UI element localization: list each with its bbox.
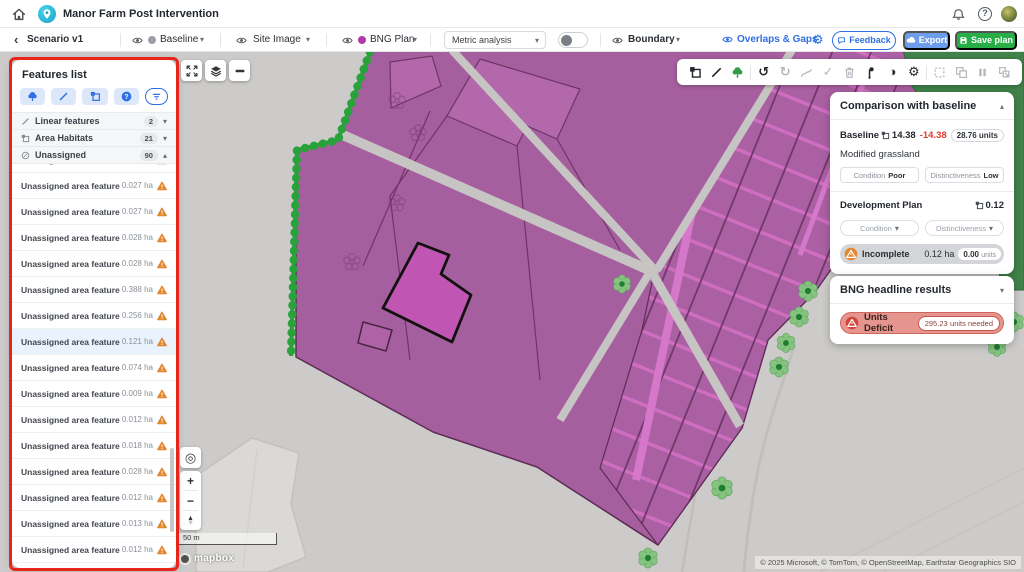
home-icon[interactable] (12, 7, 26, 21)
development-plan-label: Development Plan (840, 200, 922, 211)
section-unassigned[interactable]: Unassigned 90 (12, 146, 176, 163)
divider (926, 65, 927, 80)
back-chevron-icon[interactable] (14, 28, 18, 52)
scenario-label[interactable]: Scenario v1 (27, 28, 83, 52)
divider (220, 33, 221, 47)
baseline-layer-label[interactable]: Baseline (160, 28, 198, 52)
site-image-layer-label[interactable]: Site Image (253, 28, 301, 52)
chevron-up-icon[interactable] (163, 150, 167, 161)
feature-list-item[interactable]: Unassigned area feature0.018 ha (12, 433, 176, 459)
chevron-down-icon (895, 224, 899, 233)
bng-plan-layer-label[interactable]: BNG Plan (370, 28, 414, 52)
feature-list-item[interactable]: Unassigned area feature0.121 ha (12, 329, 176, 355)
feature-item-area: 0.009 ha (122, 389, 153, 398)
feature-item-label: Unassigned area feature (21, 441, 122, 451)
feature-item-area: 0.012 ha (122, 493, 153, 502)
condition-dropdown-label: Condition (860, 224, 892, 233)
toggle-knob (561, 35, 572, 46)
fullscreen-button[interactable] (181, 60, 202, 81)
feature-list-item[interactable]: Unassigned area feature0.028 ha (12, 225, 176, 251)
warning-triangle-icon (157, 207, 167, 217)
feature-item-area: 0.018 ha (122, 441, 153, 450)
overlaps-gaps-label: Overlaps & Gaps (737, 34, 818, 45)
page-title: Manor Farm Post Intervention (63, 0, 219, 28)
warning-triangle-icon (157, 311, 167, 321)
bng-headline-panel: BNG headline results Units Deficit 295.2… (830, 276, 1014, 344)
chevron-down-icon[interactable] (413, 28, 417, 52)
bng-plan-visibility-eye-icon[interactable] (342, 35, 353, 46)
filter-button[interactable] (145, 88, 168, 105)
select-box-icon (933, 66, 946, 79)
feature-item-area: 0.027 ha (122, 207, 153, 216)
chevron-down-icon (535, 32, 539, 49)
freehand-tool[interactable] (798, 63, 816, 81)
warning-triangle-icon (157, 259, 167, 269)
warning-triangle-icon (157, 337, 167, 347)
metric-analysis-dropdown[interactable]: Metric analysis (444, 31, 546, 49)
section-linear-features[interactable]: Linear features 2 (12, 112, 176, 129)
divider (120, 33, 121, 47)
save-icon (959, 36, 968, 45)
compass-button[interactable] (180, 511, 201, 530)
scenario-toolbar: Scenario v1 Baseline Site Image BNG Plan… (0, 28, 1024, 52)
distinctiveness-value: Low (984, 171, 999, 180)
tab-area-features[interactable] (82, 88, 107, 105)
metric-analysis-label: Metric analysis (452, 35, 512, 45)
feature-item-label: Unassigned area feature (21, 181, 122, 191)
feature-list-item[interactable]: Unassigned area feature0.012 ha (12, 537, 176, 563)
feature-filter-tabs (12, 88, 176, 112)
warning-triangle-icon (157, 467, 167, 477)
delete-button[interactable] (841, 63, 859, 81)
feedback-button[interactable]: Feedback (832, 31, 896, 50)
chevron-down-icon[interactable] (306, 28, 310, 52)
split-tool[interactable] (974, 63, 992, 81)
tree-tool[interactable] (729, 63, 747, 81)
units-deficit-value: 295.23 (925, 319, 948, 328)
feature-item-area: 0.028 ha (122, 259, 153, 268)
chevron-down-icon[interactable] (163, 116, 167, 127)
polygon-icon (90, 91, 101, 102)
section-label: Linear features (35, 116, 144, 126)
feature-item-label: Unassigned area feature (21, 545, 122, 555)
user-avatar[interactable] (1001, 6, 1017, 22)
mapbox-wordmark: mapbox (194, 553, 234, 564)
bng-plan-layer-dot (358, 36, 366, 44)
redo-button[interactable]: ↻ (776, 63, 794, 81)
feature-item-label: Unassigned area feature (21, 389, 122, 399)
feature-item-label: Unassigned area feature (21, 207, 122, 217)
mask-tool[interactable]: ◑ (883, 63, 901, 81)
divider (750, 65, 751, 80)
comparison-panel-title: Comparison with baseline (840, 100, 1000, 112)
count-badge: 2 (144, 116, 158, 127)
development-plan-area-value: 0.12 (986, 200, 1005, 211)
feature-item-label: Unassigned area feature (21, 519, 122, 529)
baseline-change-value: -14.38 (920, 130, 947, 141)
feature-item-label: Unassigned area feature (21, 233, 122, 243)
split-bars-icon (976, 66, 989, 79)
polygon-icon (975, 201, 984, 210)
feature-item-area: 0.028 ha (122, 233, 153, 242)
feature-list-item[interactable]: Unassigned area feature0.028 ha (12, 251, 176, 277)
warning-triangle-icon (157, 233, 167, 243)
freehand-icon (800, 66, 813, 79)
features-list-title: Features list (12, 60, 176, 88)
site-image-visibility-eye-icon[interactable] (236, 35, 247, 46)
notifications-bell-icon[interactable] (952, 8, 965, 21)
scale-label: 50 m (183, 533, 200, 542)
divider (830, 191, 1014, 192)
feature-list-item[interactable]: Unassigned area feature0.012 ha (12, 407, 176, 433)
baseline-area-value: 14.38 (892, 130, 916, 141)
condition-value: Poor (888, 171, 905, 180)
map-settings-button[interactable]: ⚙ (905, 63, 923, 81)
lamp-post-tool[interactable] (862, 63, 880, 81)
condition-dropdown[interactable]: Condition (840, 220, 919, 236)
ruler-icon (234, 65, 246, 77)
tree-icon (731, 66, 744, 79)
chevron-down-icon (989, 224, 993, 233)
bng-panel-header[interactable]: BNG headline results (830, 276, 1014, 304)
feature-list-item[interactable]: Unassigned area feature0.028 ha (12, 459, 176, 485)
feature-list-item[interactable]: Unassigned area feature0.388 ha (12, 277, 176, 303)
feature-item-label: Unassigned area feature (21, 285, 122, 295)
divider (600, 33, 601, 47)
save-plan-label: Save plan (971, 35, 1013, 45)
feature-item-label: Unassigned area feature (21, 467, 122, 477)
save-plan-button[interactable]: Save plan (955, 31, 1017, 50)
feature-item-area: 0.388 ha (122, 285, 153, 294)
units-deficit-bar: Units Deficit 295.23 units needed (840, 312, 1004, 334)
comparison-panel: Comparison with baseline Baseline 14.38 … (830, 92, 1014, 274)
feature-item-area: 0.012 ha (122, 545, 153, 554)
count-badge: 21 (140, 133, 158, 144)
duplicate-icon (998, 66, 1011, 79)
feature-item-label: Unassigned area feature (21, 337, 122, 347)
geolocate-button[interactable] (180, 447, 201, 468)
confirm-button[interactable]: ✓ (819, 63, 837, 81)
feature-item-area: 0.027 ha (122, 181, 153, 190)
section-area-habitats[interactable]: Area Habitats 21 (12, 129, 176, 146)
status-units-suffix: units (981, 252, 996, 259)
condition-label: Condition (854, 171, 886, 180)
chevron-down-icon[interactable] (163, 133, 167, 144)
layers-icon (210, 65, 222, 77)
section-label: Area Habitats (35, 133, 140, 143)
map-edit-toolbar: ↺ ↻ ✓ ◑ ⚙ (677, 59, 1022, 85)
zoom-out-button[interactable] (180, 491, 201, 510)
tab-unassigned-features[interactable] (114, 88, 139, 105)
boundary-visibility-eye-icon[interactable] (612, 35, 623, 46)
boundary-layer-label[interactable]: Boundary (628, 28, 675, 52)
copy-tool[interactable] (952, 63, 970, 81)
measure-button[interactable] (229, 60, 250, 81)
draw-polygon-tool[interactable] (686, 63, 704, 81)
zoom-in-button[interactable] (180, 471, 201, 490)
feature-item-area: 0.012 ha (122, 415, 153, 424)
warning-triangle-icon (157, 519, 167, 529)
warning-triangle-icon (157, 493, 167, 503)
units-deficit-label: Units Deficit (864, 312, 913, 334)
line-icon (710, 66, 723, 79)
feature-list-item[interactable]: Unassigned area feature0.027 ha (12, 173, 176, 199)
metric-analysis-toggle[interactable] (558, 32, 588, 48)
warning-triangle-icon (157, 545, 167, 555)
feature-item-label: Unassigned area feature (21, 493, 122, 503)
map-attribution[interactable]: © 2025 Microsoft, © TomTom, © OpenStreet… (755, 556, 1021, 569)
bng-panel-title: BNG headline results (840, 284, 1000, 296)
feature-item-area: 0.121 ha (122, 337, 153, 346)
warning-triangle-icon (157, 163, 167, 165)
feature-list-item[interactable]: Unassigned area feature0.012 ha (12, 485, 176, 511)
zoom-controls (180, 471, 201, 530)
comparison-panel-header[interactable]: Comparison with baseline (830, 92, 1014, 120)
feature-item-label: Unassigned area feature (21, 163, 153, 165)
polygon-icon (881, 131, 890, 140)
warning-triangle-icon (157, 441, 167, 451)
status-units-badge: 0.00 units (958, 248, 1001, 260)
duplicate-tool[interactable] (995, 63, 1013, 81)
feature-item-area: 0.028 ha (122, 467, 153, 476)
warning-triangle-icon (157, 415, 167, 425)
warning-triangle-icon (157, 285, 167, 295)
polygon-icon (21, 134, 30, 143)
warning-circle-icon (845, 316, 859, 330)
export-button[interactable]: Export (903, 31, 950, 50)
feature-list-item[interactable]: Unassigned area feature (12, 163, 176, 173)
overlaps-eye-icon (722, 34, 733, 45)
list-scrollbar-thumb[interactable] (170, 448, 174, 532)
overlaps-gaps-button[interactable]: Overlaps & Gaps (722, 28, 818, 52)
help-icon[interactable] (978, 7, 992, 21)
count-badge: 90 (140, 150, 158, 161)
baseline-visibility-eye-icon[interactable] (132, 35, 143, 46)
divider (326, 33, 327, 47)
chat-icon (837, 36, 846, 45)
collapse-chevron-icon[interactable] (1000, 101, 1004, 112)
compass-icon (185, 515, 196, 526)
tab-linear-features[interactable] (51, 88, 76, 105)
warning-triangle-icon (157, 389, 167, 399)
polygon-icon (689, 66, 702, 79)
feature-list-item[interactable]: Unassigned area feature0.009 ha (12, 381, 176, 407)
mapbox-logo[interactable]: mapbox (179, 551, 234, 566)
habitat-name: Modified grassland (840, 149, 1004, 160)
divider (430, 33, 431, 47)
tree-icon (27, 91, 38, 102)
cloud-icon (906, 35, 916, 45)
undo-button[interactable]: ↺ (755, 63, 773, 81)
lamp-post-icon (864, 66, 877, 79)
feature-item-area: 0.074 ha (122, 363, 153, 372)
settings-gear-icon[interactable] (812, 33, 824, 47)
expand-icon (186, 65, 198, 77)
units-deficit-suffix: units needed (950, 319, 993, 328)
feature-item-label: Unassigned area feature (21, 259, 122, 269)
feature-item-label: Unassigned area feature (21, 415, 122, 425)
distinctiveness-label: Distinctiveness (930, 171, 980, 180)
feature-list-item[interactable]: Unassigned area feature0.074 ha (12, 355, 176, 381)
chevron-down-icon[interactable] (200, 28, 204, 52)
feedback-label: Feedback (849, 35, 891, 45)
chevron-down-icon[interactable] (676, 28, 680, 52)
question-icon (121, 91, 132, 102)
status-area-value: 0.12 ha (924, 249, 954, 259)
line-icon (21, 117, 30, 126)
status-units-value: 0.00 (963, 250, 979, 259)
copy-icon (955, 66, 968, 79)
trash-icon (843, 66, 856, 79)
map-scale-bar: 50 m (178, 533, 277, 545)
unassigned-circle-icon (21, 151, 30, 160)
distinctiveness-value-pill: DistinctivenessLow (925, 167, 1004, 183)
warning-circle-icon (844, 247, 858, 261)
distinctiveness-dropdown[interactable]: Distinctiveness (925, 220, 1004, 236)
app-header: Manor Farm Post Intervention (0, 0, 1024, 28)
condition-value-pill: ConditionPoor (840, 167, 919, 183)
project-pin-icon (38, 5, 56, 23)
select-box-tool[interactable] (931, 63, 949, 81)
baseline-layer-dot (148, 36, 156, 44)
filter-icon (151, 91, 162, 102)
layers-button[interactable] (205, 60, 226, 81)
status-label: Incomplete (862, 249, 920, 259)
baseline-units-badge: 28.76 units (951, 129, 1004, 142)
feature-list-item[interactable]: Unassigned area feature0.027 ha (12, 199, 176, 225)
units-deficit-badge: 295.23 units needed (918, 316, 1000, 331)
line-icon (58, 91, 69, 102)
incomplete-status-bar: Incomplete 0.12 ha 0.00 units (840, 244, 1004, 264)
distinctiveness-dropdown-label: Distinctiveness (936, 224, 986, 233)
section-label: Unassigned (35, 150, 140, 160)
draw-line-tool[interactable] (707, 63, 725, 81)
warning-triangle-icon (157, 181, 167, 191)
mapbox-circle-icon (179, 553, 191, 565)
feature-list: Unassigned area featureUnassigned area f… (12, 163, 176, 568)
export-label: Export (919, 35, 948, 45)
warning-triangle-icon (157, 363, 167, 373)
feature-item-area: 0.013 ha (122, 519, 153, 528)
collapse-chevron-icon[interactable] (1000, 285, 1004, 296)
feature-item-label: Unassigned area feature (21, 363, 122, 373)
feature-item-area: 0.256 ha (122, 311, 153, 320)
feature-list-item[interactable]: Unassigned area feature0.013 ha (12, 511, 176, 537)
baseline-label: Baseline (840, 130, 879, 141)
feature-item-label: Unassigned area feature (21, 311, 122, 321)
features-list-panel: Features list Linear features 2 Area Hab… (12, 60, 176, 568)
feature-list-item[interactable]: Unassigned area feature0.256 ha (12, 303, 176, 329)
tab-tree-features[interactable] (20, 88, 45, 105)
